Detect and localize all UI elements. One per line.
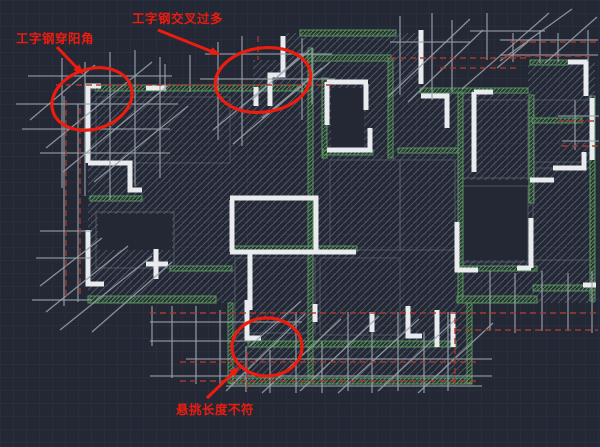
annotation-label-3: 悬挑长度不符 (175, 402, 254, 417)
cad-viewport[interactable]: 工字钢穿阳角 工字钢交叉过多 悬挑长度不符 (0, 0, 600, 447)
annotation-label-1: 工字钢穿阳角 (16, 31, 94, 46)
annotation-label-2: 工字钢交叉过多 (132, 11, 223, 26)
cad-drawing: 工字钢穿阳角 工字钢交叉过多 悬挑长度不符 (0, 0, 600, 447)
